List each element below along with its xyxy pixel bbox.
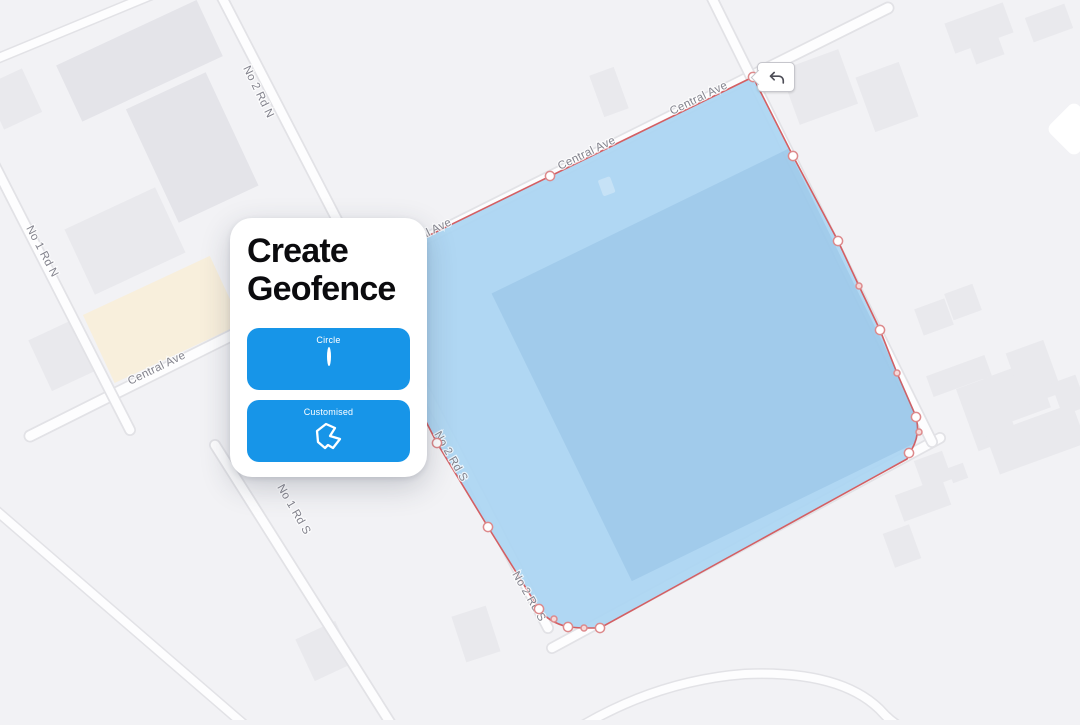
- customised-geofence-button[interactable]: Customised: [247, 400, 410, 462]
- vertex-handle[interactable]: [788, 151, 797, 160]
- vertex-handle[interactable]: [833, 236, 842, 245]
- vertex-handle[interactable]: [483, 522, 492, 531]
- vertex-midpoint-handle[interactable]: [581, 625, 587, 631]
- vertex-midpoint-handle[interactable]: [551, 616, 557, 622]
- popup-title-line1: Create: [247, 232, 417, 270]
- popup-title-line2: Geofence: [247, 270, 417, 308]
- popup-title: Create Geofence: [247, 232, 417, 308]
- map-canvas[interactable]: No 2 Rd N No 1 Rd N Central Ave Central …: [0, 0, 1080, 720]
- vertex-handle[interactable]: [904, 448, 913, 457]
- vertex-midpoint-handle[interactable]: [856, 283, 862, 289]
- vertex-handle[interactable]: [875, 325, 884, 334]
- vertex-handle[interactable]: [545, 171, 554, 180]
- customised-button-label: Customised: [304, 407, 354, 417]
- circle-button-label: Circle: [316, 335, 340, 345]
- vertex-handle[interactable]: [595, 623, 604, 632]
- undo-button[interactable]: [757, 62, 795, 92]
- vertex-handle[interactable]: [534, 604, 543, 613]
- undo-arrow-icon: [766, 69, 786, 86]
- vertex-handle[interactable]: [563, 622, 572, 631]
- circle-geofence-button[interactable]: Circle: [247, 328, 410, 390]
- vertex-midpoint-handle[interactable]: [916, 429, 922, 435]
- vertex-handle[interactable]: [911, 412, 920, 421]
- custom-polygon-icon: [313, 421, 345, 454]
- circle-outline-icon: [327, 349, 331, 364]
- vertex-handle[interactable]: [432, 438, 441, 447]
- create-geofence-popup: Create Geofence Circle Customised: [230, 218, 427, 477]
- vertex-midpoint-handle[interactable]: [894, 370, 900, 376]
